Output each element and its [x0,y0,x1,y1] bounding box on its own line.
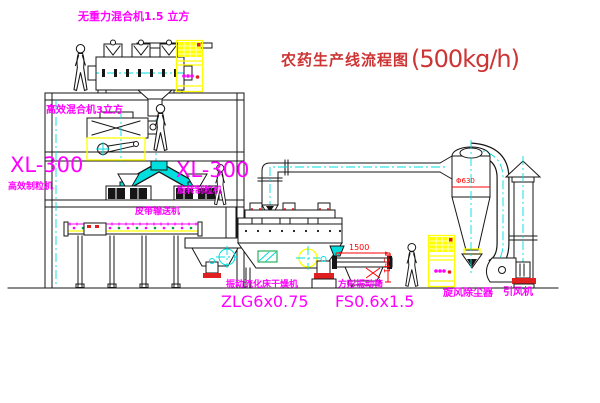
belt-conveyor-machine [64,222,202,288]
fluid-bed-dryer-machine [238,203,344,288]
worker-figure [74,45,87,91]
page-title-capacity: (500kg/h) [411,45,519,73]
label-granulator-left-model: XL-300 [10,155,83,176]
label-fan: 引风机 [503,288,533,298]
control-cabinet-right [429,236,455,287]
label-granulator-left-name: 高效制粒机 [8,183,53,192]
label-dryer-name: 振动流化床干燥机 [226,281,298,290]
feeder-hopper [185,238,245,278]
page-title: 农药生产线流程图 (500kg/h) [281,45,519,73]
label-cyclone: 旋风除尘器 [443,289,493,299]
label-dryer-model: ZLG6x0.75 [221,294,309,310]
page-title-text: 农药生产线流程图 [281,49,409,70]
label-belt-conveyor: 皮带输送机 [135,208,180,217]
worker-figure [406,243,418,286]
cyclone-separator [440,140,490,274]
label-granulator-right-model: XL-300 [176,160,249,181]
label-screen-model: FS0.6x1.5 [335,294,414,310]
dim-screen-length: 1500 [349,244,369,252]
label-high-eff-mixer: 高效混合机3立方 [46,106,123,116]
induced-draft-fan [486,258,536,288]
diagram-canvas: 农药生产线流程图 (500kg/h) 无重力混合机1.5 立方 高效混合机3立方… [0,0,600,403]
dim-screen-height: 541 [382,258,390,273]
discharge-chute-column [226,207,236,238]
label-gravity-mixer: 无重力混合机1.5 立方 [78,11,189,22]
label-granulator-right-name: 旋转制粒机 [177,187,222,196]
label-screen-name: 方形振动筛 [338,281,383,290]
high-eff-mixer-machine [87,110,158,162]
dim-cyclone-diameter: Φ630 [456,178,475,185]
